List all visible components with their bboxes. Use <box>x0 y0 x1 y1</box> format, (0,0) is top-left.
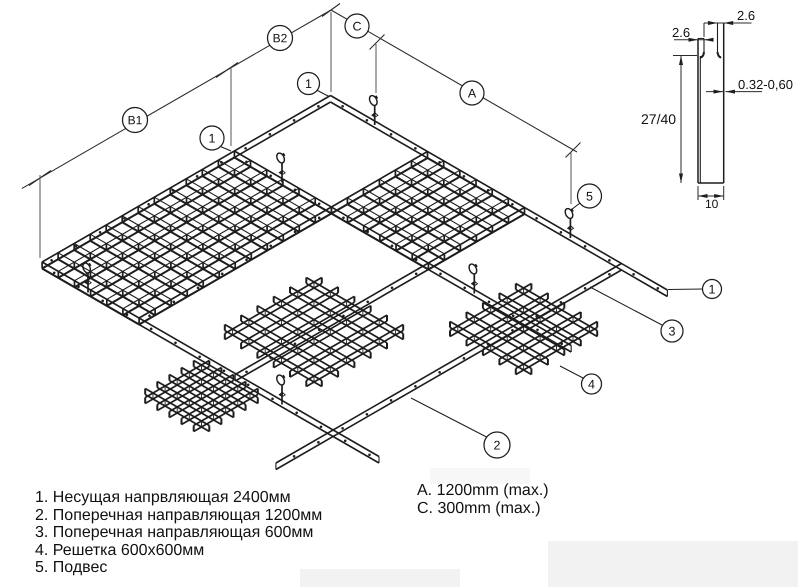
svg-text:27/40: 27/40 <box>641 111 676 127</box>
svg-text:10: 10 <box>705 197 719 211</box>
svg-text:B1: B1 <box>128 113 143 127</box>
svg-text:0.32-0,60: 0.32-0,60 <box>738 77 793 92</box>
svg-text:1: 1 <box>709 282 716 296</box>
svg-text:1: 1 <box>305 77 312 91</box>
svg-text:2: 2 <box>494 438 501 452</box>
svg-text:4: 4 <box>588 377 595 391</box>
svg-text:3: 3 <box>669 324 676 338</box>
svg-text:1: 1 <box>209 131 216 145</box>
svg-text:C: C <box>352 19 361 33</box>
svg-text:A: A <box>468 86 477 100</box>
svg-text:B2: B2 <box>273 31 288 45</box>
svg-text:5: 5 <box>586 189 593 203</box>
svg-text:2.6: 2.6 <box>737 8 755 23</box>
svg-text:2.6: 2.6 <box>672 25 690 40</box>
